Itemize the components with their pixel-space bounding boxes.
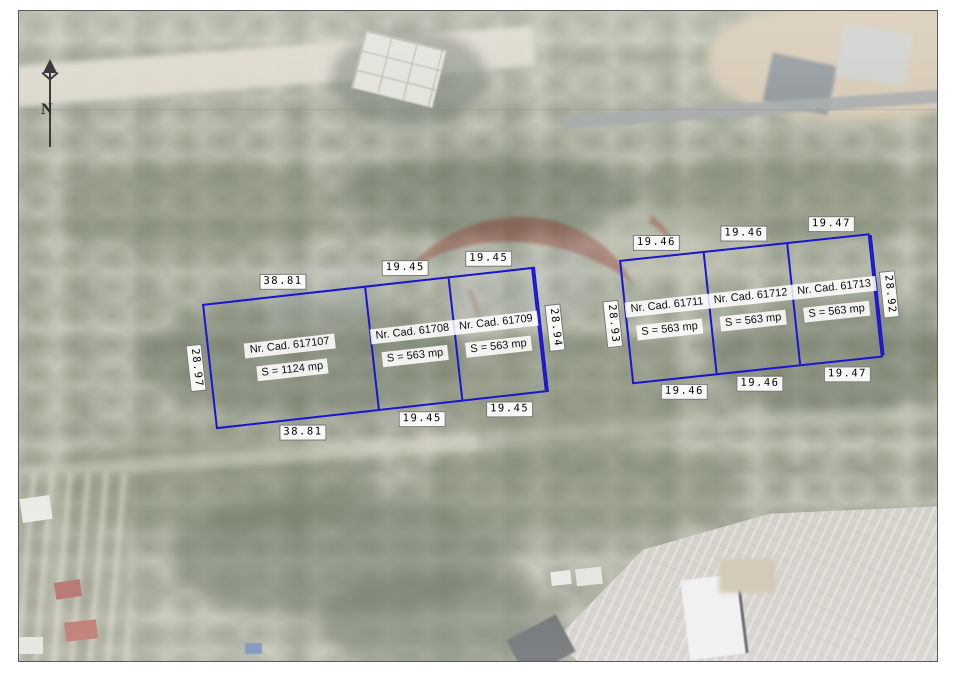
- plot-cad-label: Nr. Cad. 61713: [792, 276, 877, 300]
- dim-top: 19.46: [720, 226, 767, 242]
- dim-top: 19.45: [382, 260, 429, 276]
- plot-61709: Nr. Cad. 61709 S = 563 mp 19.45 19.45: [450, 269, 547, 400]
- north-label: N: [41, 101, 53, 119]
- plot-cad-label: Nr. Cad. 61711: [625, 294, 709, 318]
- plot-area-label: S = 563 mp: [381, 344, 449, 366]
- cadastral-map-page: N Nr. Cad. 617107 S = 1124 mp 38.81 38.8…: [0, 0, 960, 679]
- plot-area-label: S = 1124 mp: [256, 358, 329, 381]
- plot-area-label: S = 563 mp: [719, 310, 787, 332]
- plot-cad-label: Nr. Cad. 61709: [453, 310, 538, 334]
- dim-bottom: 19.47: [824, 366, 871, 382]
- plot-area-label: S = 563 mp: [465, 335, 533, 357]
- plot-cad-label: Nr. Cad. 61708: [370, 320, 455, 344]
- north-arrow: N: [31, 59, 71, 154]
- dim-top: 19.45: [465, 251, 512, 267]
- plot-61708: Nr. Cad. 61708 S = 563 mp 19.45 19.45: [366, 278, 463, 409]
- dim-bottom: 19.46: [661, 384, 708, 400]
- aerial-photo: N Nr. Cad. 617107 S = 1124 mp 38.81 38.8…: [18, 10, 938, 662]
- plot-area-label: S = 563 mp: [803, 301, 871, 323]
- plot-cad-label: Nr. Cad. 61712: [708, 285, 793, 309]
- dim-bottom: 19.45: [399, 411, 446, 427]
- dim-top: 19.47: [808, 216, 855, 232]
- dim-bottom: 19.45: [486, 401, 533, 417]
- dim-top: 38.81: [259, 274, 306, 290]
- plot-group-east: Nr. Cad. 61711 S = 563 mp 19.46 19.46 Nr…: [619, 233, 883, 384]
- dim-bottom: 38.81: [279, 424, 326, 440]
- plot-61712: Nr. Cad. 61712 S = 563 mp 19.46 19.46: [705, 244, 801, 373]
- plot-61711: Nr. Cad. 61711 S = 563 mp 19.46 19.46: [621, 253, 717, 382]
- dim-bottom: 19.46: [736, 376, 783, 392]
- north-arrow-head: [43, 59, 57, 73]
- plot-area-label: S = 563 mp: [636, 319, 704, 341]
- plot-617107: Nr. Cad. 617107 S = 1124 mp 38.81 38.81: [204, 288, 380, 427]
- dim-top: 19.46: [633, 235, 680, 251]
- plot-cad-label: Nr. Cad. 617107: [244, 333, 335, 358]
- plot-61713: Nr. Cad. 61713 S = 563 mp 19.47 19.47: [788, 235, 884, 364]
